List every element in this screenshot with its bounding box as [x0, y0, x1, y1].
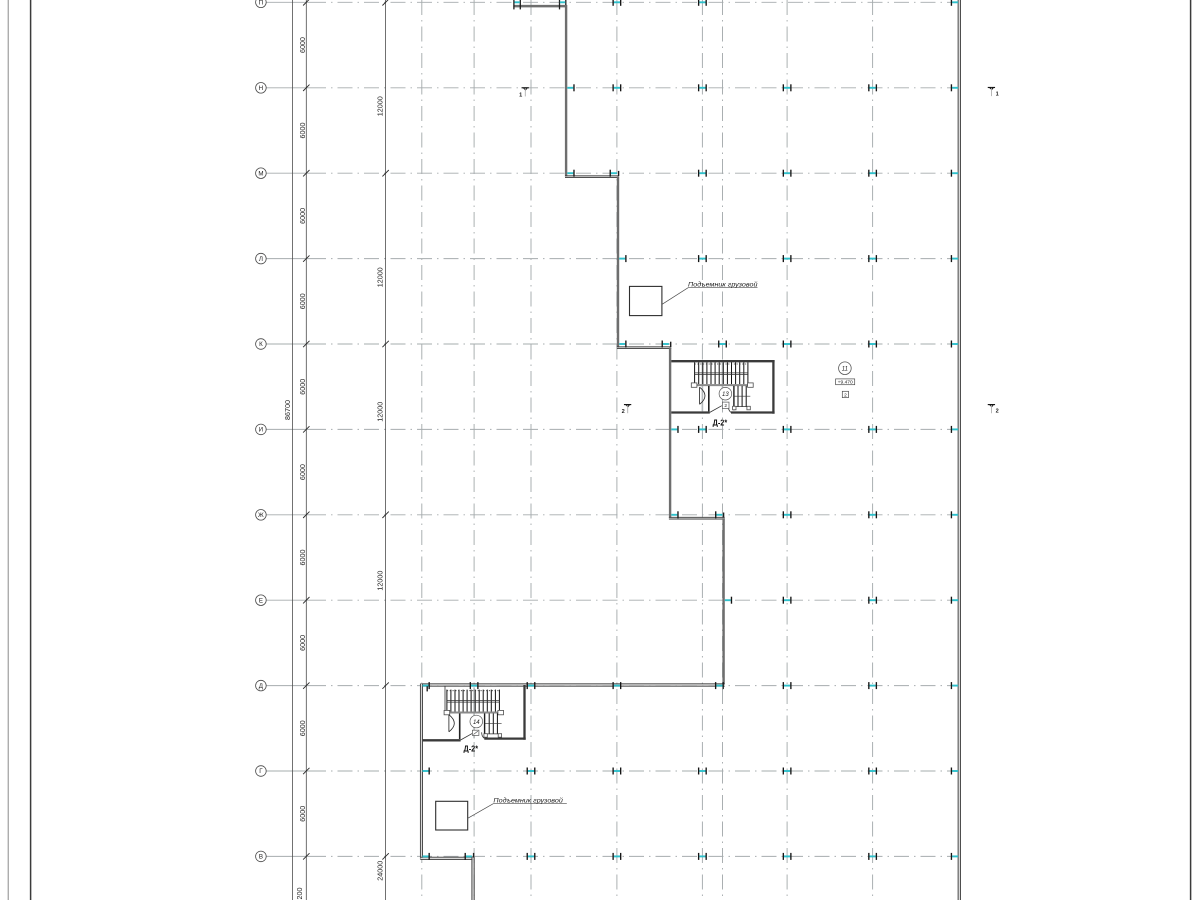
- svg-text:14: 14: [473, 720, 480, 726]
- svg-text:М: М: [258, 170, 263, 177]
- svg-text:Подъемник грузовой: Подъемник грузовой: [688, 280, 758, 288]
- svg-text:2: 2: [724, 403, 727, 409]
- svg-text:6000: 6000: [298, 37, 307, 53]
- svg-text:12000: 12000: [376, 96, 385, 116]
- svg-text:12000: 12000: [376, 402, 385, 422]
- svg-text:Н: Н: [259, 85, 263, 92]
- svg-text:6000: 6000: [298, 720, 307, 736]
- svg-text:К: К: [259, 341, 263, 348]
- svg-text:Д-2*: Д-2*: [713, 418, 728, 427]
- svg-text:Л: Л: [259, 256, 263, 263]
- svg-text:6000: 6000: [298, 806, 307, 822]
- svg-text:6000: 6000: [298, 635, 307, 651]
- svg-text:6000: 6000: [298, 208, 307, 224]
- svg-text:Е: Е: [259, 597, 263, 604]
- svg-text:6000: 6000: [298, 379, 307, 395]
- svg-text:Подъемник грузовой: Подъемник грузовой: [493, 796, 563, 804]
- svg-text:В: В: [259, 854, 263, 861]
- svg-text:2: 2: [622, 409, 625, 415]
- svg-text:6000: 6000: [298, 293, 307, 309]
- svg-text:12000: 12000: [376, 267, 385, 287]
- svg-text:11: 11: [842, 367, 848, 373]
- svg-text:6000: 6000: [298, 464, 307, 480]
- svg-text:2: 2: [996, 409, 999, 415]
- svg-text:Д-2*: Д-2*: [464, 744, 479, 753]
- svg-text:1: 1: [519, 92, 522, 98]
- svg-text:2: 2: [844, 392, 847, 398]
- svg-text:12000: 12000: [376, 571, 385, 591]
- svg-text:13: 13: [722, 392, 729, 398]
- svg-text:86700: 86700: [283, 400, 292, 420]
- svg-text:24000: 24000: [376, 861, 385, 881]
- svg-text:200: 200: [295, 888, 304, 900]
- svg-text:Ж: Ж: [258, 512, 264, 519]
- svg-text:6000: 6000: [298, 123, 307, 139]
- svg-text:6000: 6000: [298, 550, 307, 566]
- svg-text:И: И: [259, 427, 263, 434]
- svg-text:П: П: [259, 0, 263, 7]
- svg-text:+9.470: +9.470: [838, 380, 853, 386]
- svg-text:1: 1: [996, 92, 999, 98]
